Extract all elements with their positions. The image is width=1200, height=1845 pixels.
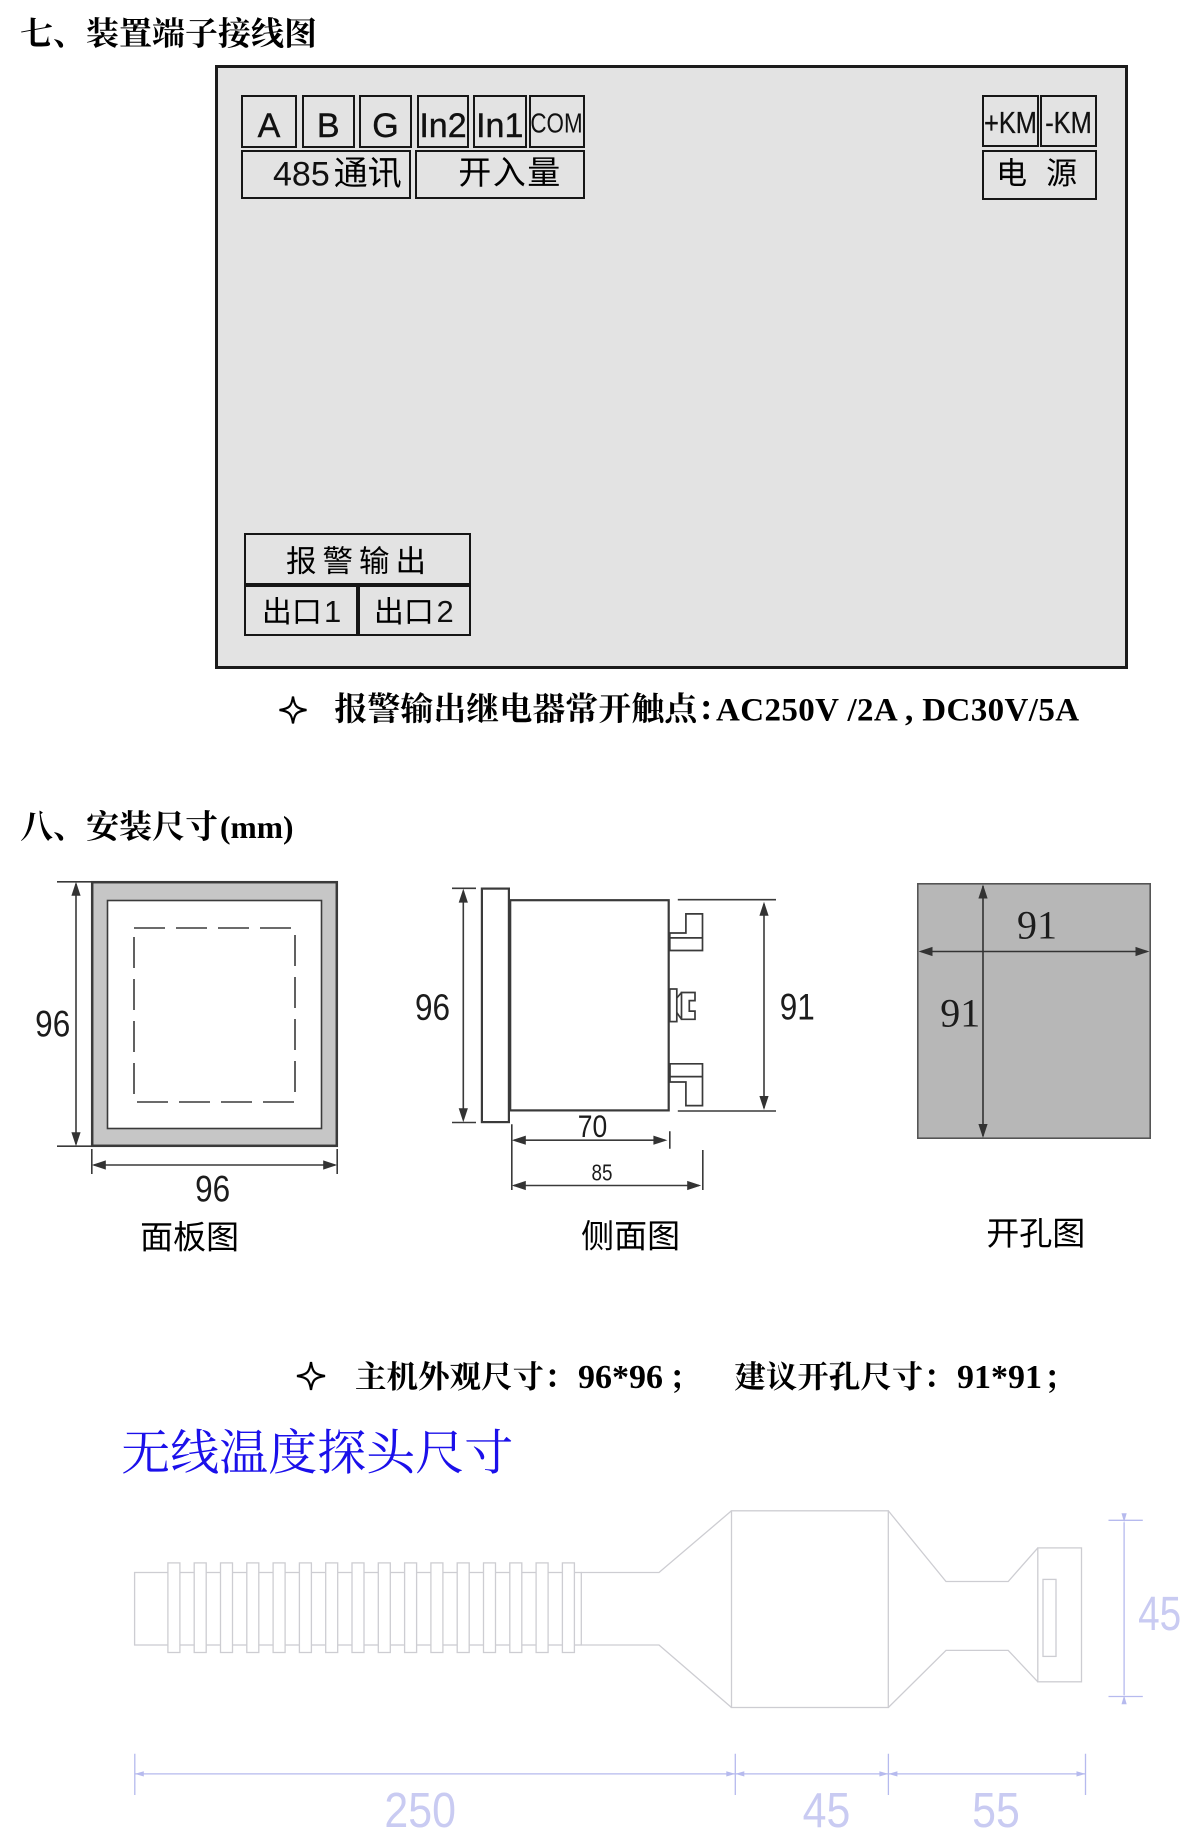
svg-text:AC250V /2A , DC30V/5A: AC250V /2A , DC30V/5A [716, 693, 1079, 729]
svg-text:In1: In1 [476, 107, 523, 145]
svg-text:-KM: -KM [1045, 106, 1092, 141]
svg-text:2: 2 [437, 594, 454, 629]
svg-text:91: 91 [940, 991, 980, 1036]
svg-text:G: G [372, 107, 398, 145]
svg-text:91*91: 91*91 [957, 1359, 1042, 1396]
svg-text:485: 485 [273, 156, 330, 194]
svg-text:91: 91 [1017, 903, 1057, 948]
svg-text:COM: COM [530, 108, 582, 139]
svg-text:+KM: +KM [984, 106, 1037, 141]
svg-text:1: 1 [324, 594, 341, 629]
svg-text:91: 91 [780, 987, 815, 1028]
svg-text:96: 96 [195, 1169, 230, 1210]
svg-text:45: 45 [1138, 1587, 1181, 1641]
svg-text:(mm): (mm) [220, 810, 293, 845]
svg-text:55: 55 [972, 1782, 1020, 1837]
svg-text:A: A [258, 107, 281, 145]
svg-text:85: 85 [592, 1161, 613, 1186]
svg-text:96: 96 [35, 1004, 70, 1045]
svg-text:96: 96 [415, 988, 450, 1029]
svg-text:70: 70 [578, 1110, 607, 1145]
svg-text:96*96: 96*96 [578, 1359, 663, 1396]
svg-text:B: B [317, 107, 340, 145]
svg-text:250: 250 [384, 1782, 456, 1837]
svg-text:45: 45 [803, 1782, 851, 1837]
svg-text:In2: In2 [419, 107, 466, 145]
